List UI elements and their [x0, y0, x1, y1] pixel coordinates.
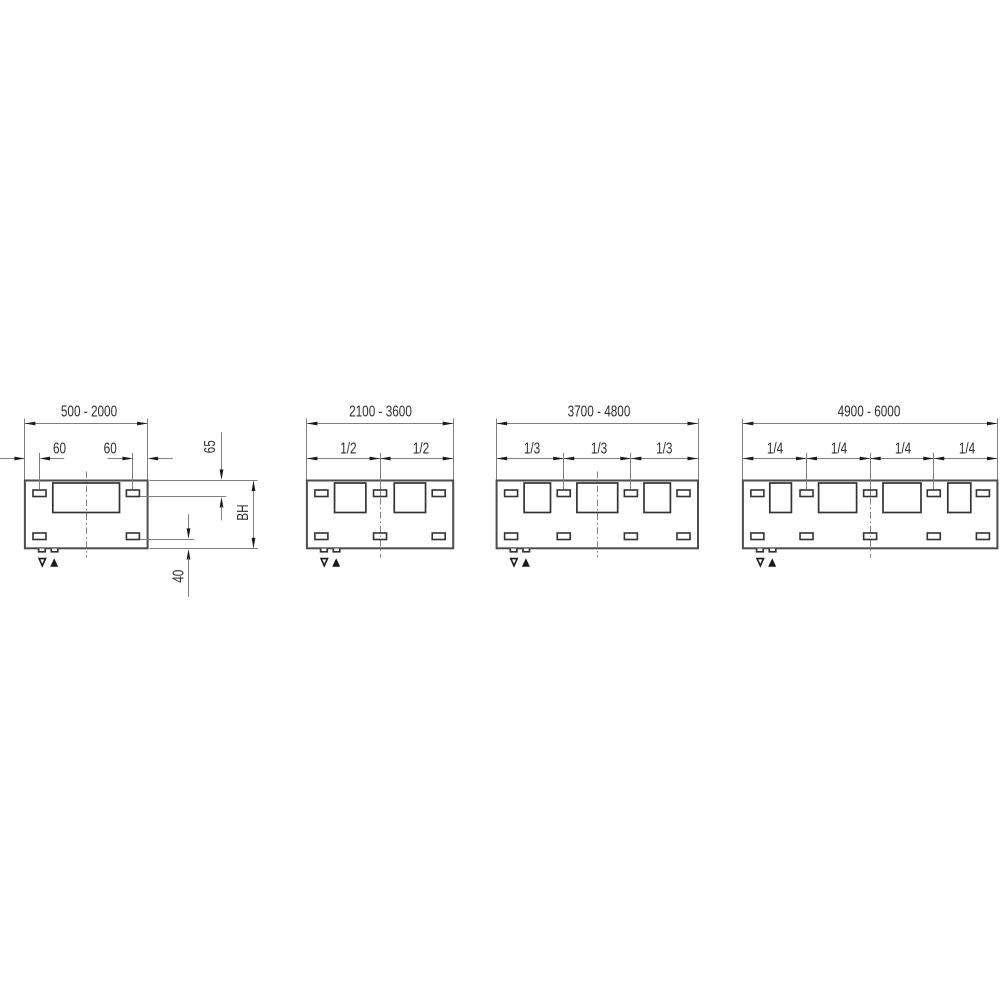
svg-text:60: 60	[104, 440, 117, 457]
svg-text:1/4: 1/4	[959, 440, 976, 457]
svg-text:4900 - 6000: 4900 - 6000	[838, 403, 901, 420]
svg-text:3700 - 4800: 3700 - 4800	[568, 403, 631, 420]
svg-text:1/4: 1/4	[767, 440, 784, 457]
svg-text:500 - 2000: 500 - 2000	[61, 403, 118, 420]
svg-text:1/3: 1/3	[591, 440, 608, 457]
svg-text:60: 60	[53, 440, 66, 457]
svg-text:40: 40	[170, 569, 187, 582]
svg-text:1/2: 1/2	[413, 440, 429, 457]
svg-text:1/3: 1/3	[524, 440, 541, 457]
svg-text:2100 - 3600: 2100 - 3600	[349, 403, 412, 420]
svg-text:BH: BH	[235, 504, 252, 520]
svg-text:65: 65	[201, 440, 218, 453]
svg-text:1/2: 1/2	[340, 440, 356, 457]
svg-text:1/4: 1/4	[831, 440, 848, 457]
svg-text:1/3: 1/3	[656, 440, 673, 457]
svg-text:1/4: 1/4	[895, 440, 912, 457]
